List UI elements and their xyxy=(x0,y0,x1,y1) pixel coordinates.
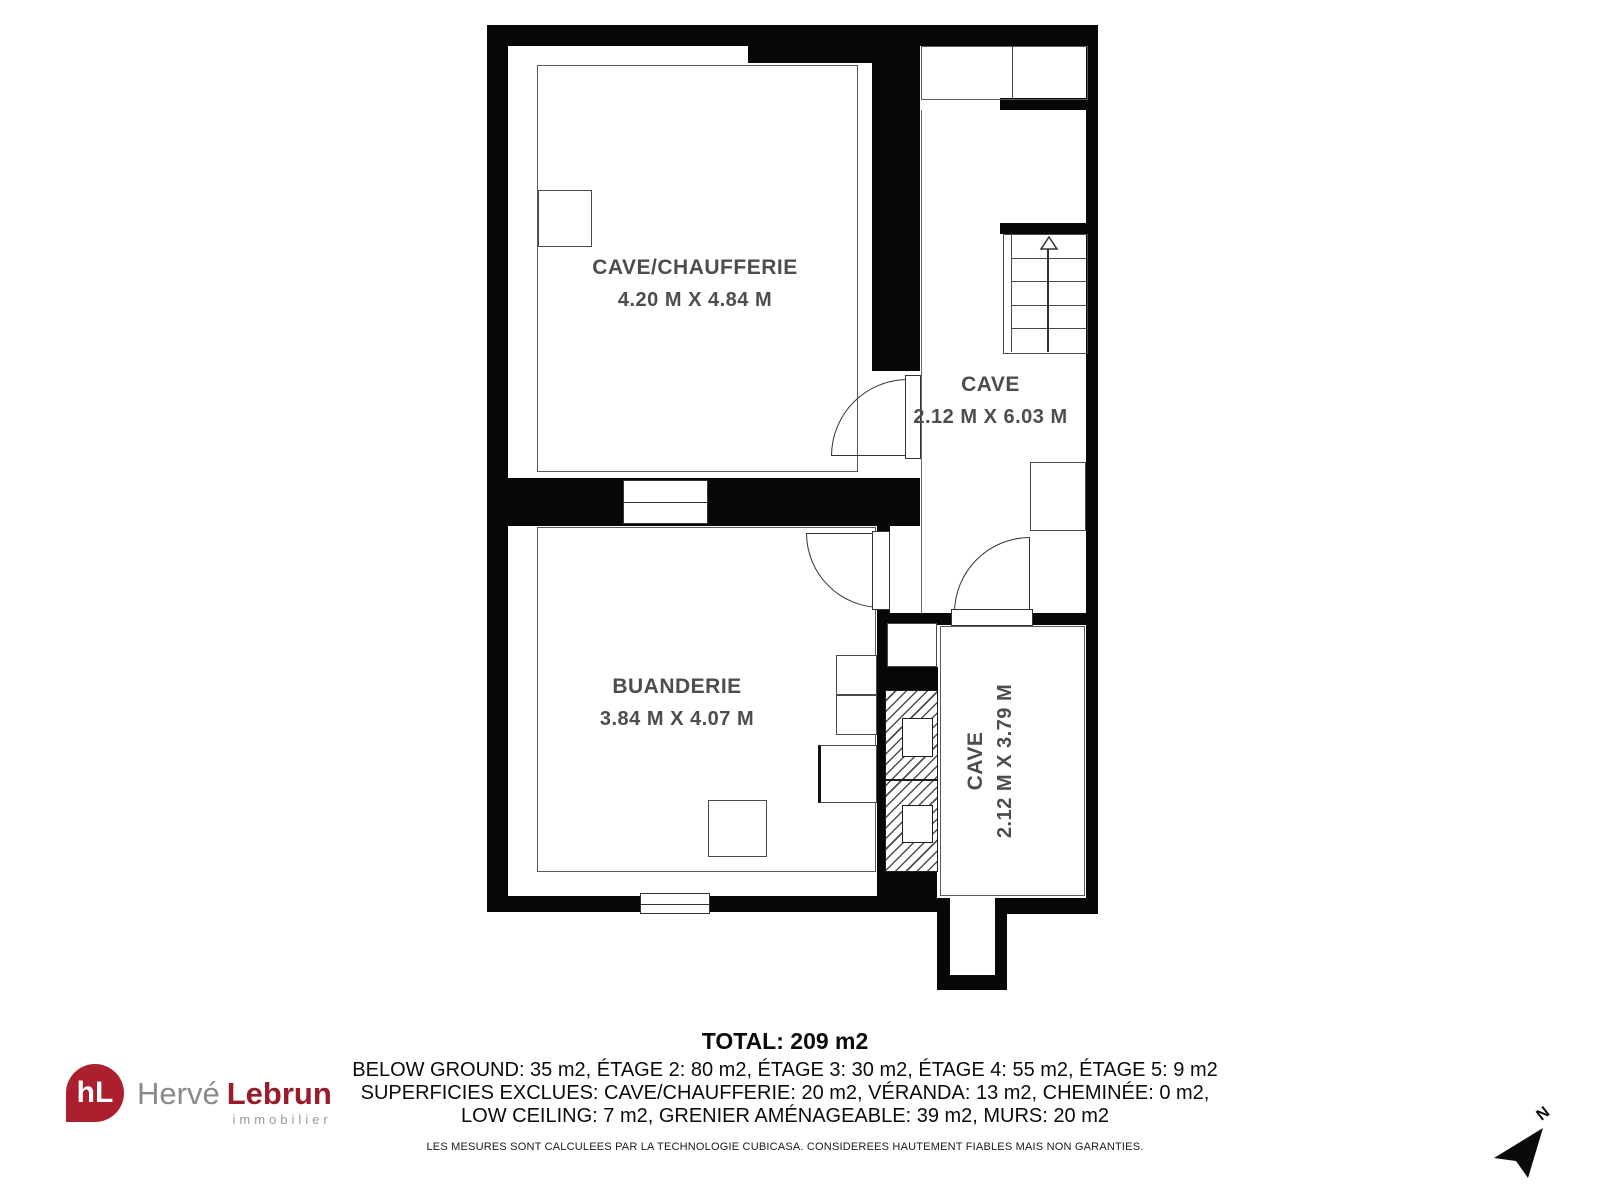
door-threshold-hall xyxy=(951,609,1033,626)
window-sill-line xyxy=(641,904,709,905)
hatch-divider xyxy=(885,779,938,781)
room-label-buanderie: BUANDERIE 3.84 M X 4.07 M xyxy=(517,675,837,731)
furniture-box xyxy=(887,623,937,667)
door-arc-hall xyxy=(954,537,1030,613)
logo-last-name: Lebrun xyxy=(227,1076,332,1111)
furniture-box xyxy=(538,190,592,247)
furniture-box xyxy=(836,695,877,735)
wall-top-thick-segment xyxy=(748,25,872,63)
door-leaf-buanderie xyxy=(872,531,890,610)
room-label-cave-chaufferie: CAVE/CHAUFFERIE 4.20 M X 4.84 M xyxy=(535,256,855,312)
compass-north-label: N xyxy=(1533,1104,1553,1125)
logo-wordmark: HervéLebrun immobilier xyxy=(137,1076,332,1127)
stairs-tread xyxy=(1012,305,1086,306)
window-sill-line xyxy=(624,502,707,503)
room-dimensions: 4.20 M X 4.84 M xyxy=(535,289,855,312)
wall-left xyxy=(487,25,508,912)
room-name: CAVE xyxy=(903,373,1078,397)
room-label-cave-corridor: CAVE 2.12 M X 6.03 M xyxy=(903,373,1078,429)
furniture-box xyxy=(708,800,767,857)
summary-footer: TOTAL: 209 m2 BELOW GROUND: 35 m2, ÉTAGE… xyxy=(185,1028,1385,1153)
window-bottom xyxy=(640,893,710,914)
appliance-box xyxy=(818,745,877,803)
wall-hatch-top xyxy=(880,667,938,690)
stairs-rail xyxy=(1011,234,1012,352)
room-label-cave-bottom: CAVE 2.12 M X 3.79 M xyxy=(964,651,1022,871)
areas-line-2: SUPERFICIES EXCLUES: CAVE/CHAUFFERIE: 20… xyxy=(185,1082,1385,1105)
wall-stairs-top xyxy=(1000,223,1086,234)
chimney-flue-box xyxy=(902,718,933,757)
wall-cave-bottom xyxy=(1007,898,1098,914)
stairs xyxy=(1003,234,1088,354)
stairs-tread xyxy=(1012,281,1086,282)
stairs-tread xyxy=(1012,258,1086,259)
floorplan-page: CAVE/CHAUFFERIE 4.20 M X 4.84 M CAVE 2.1… xyxy=(0,0,1600,1200)
wall-right xyxy=(1086,25,1098,914)
stairs-tread xyxy=(1012,328,1086,329)
logo-first-name: Hervé xyxy=(137,1076,220,1111)
north-compass-icon: N xyxy=(1455,1080,1565,1185)
niche-top-right xyxy=(921,46,1088,100)
room-name: BUANDERIE xyxy=(517,675,837,699)
niche-divider xyxy=(1012,46,1013,98)
wall-middle-upper xyxy=(872,46,920,371)
room-dimensions: 3.84 M X 4.07 M xyxy=(517,708,837,731)
areas-line-1: BELOW GROUND: 35 m2, ÉTAGE 2: 80 m2, ÉTA… xyxy=(185,1059,1385,1082)
room-dimensions: 2.12 M X 3.79 M xyxy=(994,651,1017,871)
agency-logo: hL HervéLebrun immobilier xyxy=(66,1064,332,1127)
furniture-box xyxy=(1030,462,1086,531)
logo-monogram-icon: hL xyxy=(66,1064,124,1122)
stairs-up-arrow-icon xyxy=(1039,235,1059,251)
room-name: CAVE/CHAUFFERIE xyxy=(535,256,855,280)
window-between-rooms xyxy=(623,480,708,524)
room-name: CAVE xyxy=(964,651,988,871)
protrusion-channel xyxy=(950,898,995,975)
furniture-box xyxy=(836,655,877,695)
room-dimensions: 2.12 M X 6.03 M xyxy=(903,406,1078,429)
corridor-left-line xyxy=(921,110,922,613)
chimney-flue-box xyxy=(902,805,933,843)
total-area: TOTAL: 209 m2 xyxy=(185,1028,1385,1055)
wall-bottom xyxy=(487,896,937,912)
wall-corner-block xyxy=(877,868,937,898)
disclaimer: LES MESURES SONT CALCULEES PAR LA TECHNO… xyxy=(185,1141,1385,1153)
logo-tagline: immobilier xyxy=(137,1112,332,1127)
areas-line-3: LOW CEILING: 7 m2, GRENIER AMÉNAGEABLE: … xyxy=(185,1105,1385,1128)
stairs-direction-line xyxy=(1047,249,1049,352)
